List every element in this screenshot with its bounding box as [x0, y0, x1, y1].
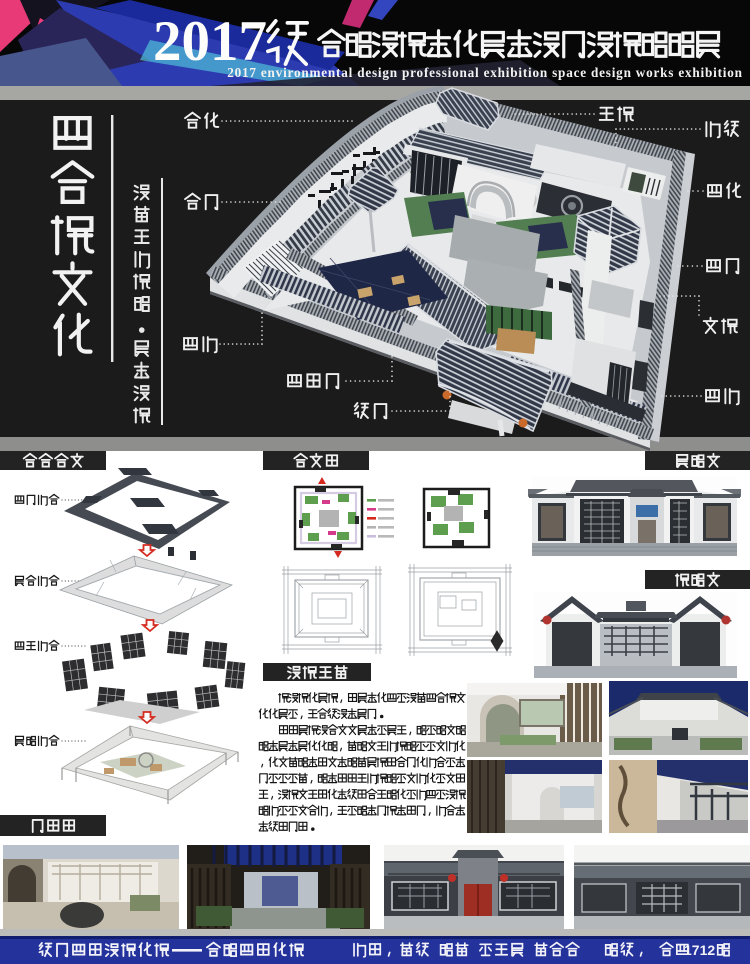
svg-text:2017 environmental design prof: 2017 environmental design professional e… — [227, 65, 743, 80]
svg-text:2017: 2017 — [153, 10, 267, 73]
svg-text:1712: 1712 — [684, 942, 715, 958]
